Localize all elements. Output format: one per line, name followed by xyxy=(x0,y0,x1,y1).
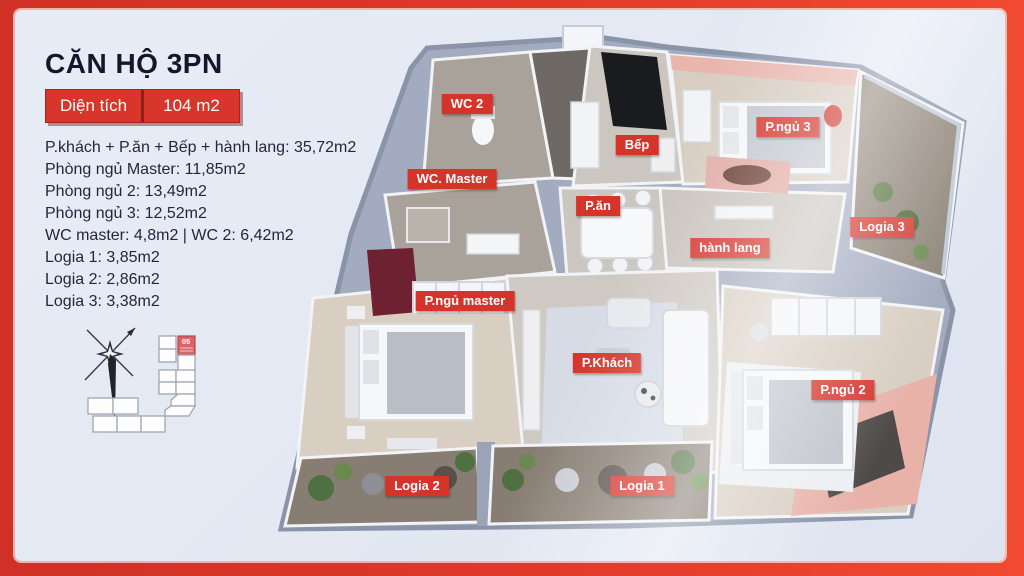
blanket xyxy=(769,380,843,464)
toilet-tank xyxy=(471,106,495,119)
chair xyxy=(587,258,603,274)
pillow xyxy=(747,376,763,400)
chair xyxy=(610,192,626,208)
pillow xyxy=(723,106,739,128)
armchair xyxy=(607,298,651,328)
bench xyxy=(387,438,437,449)
table xyxy=(433,466,457,490)
desk-chair xyxy=(750,323,768,341)
stool xyxy=(644,463,666,485)
plant xyxy=(455,452,475,472)
area-line: Phòng ngủ 3: 12,52m2 xyxy=(45,203,375,225)
headboard2 xyxy=(731,372,743,464)
plant xyxy=(873,182,893,202)
area-line: Phòng ngủ Master: 11,85m2 xyxy=(45,159,375,181)
kitchen-counter xyxy=(571,102,599,168)
chair xyxy=(635,190,651,206)
stool xyxy=(362,473,384,495)
fridge xyxy=(651,138,675,172)
plant xyxy=(502,469,524,491)
pillow xyxy=(363,330,379,354)
locator-graphic: 05 xyxy=(67,310,267,460)
vanity-sink xyxy=(467,234,519,254)
pillow xyxy=(723,132,739,154)
pillow xyxy=(747,406,763,430)
wall-art-red xyxy=(824,105,842,127)
chair xyxy=(612,257,628,273)
area-line: P.khách + P.ăn + Bếp + hành lang: 35,72m… xyxy=(45,137,375,159)
console-table xyxy=(715,206,773,219)
ottoman xyxy=(595,348,631,374)
info-panel: CĂN HỘ 3PN Diện tích 104 m2 P.khách + P.… xyxy=(45,48,375,313)
hallway-art xyxy=(723,165,771,185)
area-list: P.khách + P.ăn + Bếp + hành lang: 35,72m… xyxy=(45,137,375,313)
sofa xyxy=(663,310,709,426)
content-panel: WC 2WC. MasterBếpP.ănP.ngủ 3Logia 3hành … xyxy=(15,10,1005,561)
area-line: Logia 2: 2,86m2 xyxy=(45,269,375,291)
decor xyxy=(651,396,656,401)
plant xyxy=(690,473,708,491)
headboard xyxy=(345,326,359,418)
plant xyxy=(895,210,919,234)
shower xyxy=(407,208,449,242)
blanket xyxy=(387,332,465,414)
tv-console xyxy=(523,310,540,430)
site-plan-unit: 05 xyxy=(182,337,190,346)
decor xyxy=(641,388,647,394)
plant xyxy=(913,244,929,260)
dining-table xyxy=(581,208,653,258)
area-badge-label: Diện tích xyxy=(46,90,141,122)
stool xyxy=(555,468,579,492)
area-line: Phòng ngủ 2: 13,49m2 xyxy=(45,181,375,203)
room-hallway xyxy=(660,188,845,272)
plant xyxy=(334,463,352,481)
site-plan: 05 xyxy=(88,336,195,432)
area-line: WC master: 4,8m2 | WC 2: 6,42m2 xyxy=(45,225,375,247)
area-line: Logia 1: 3,85m2 xyxy=(45,247,375,269)
vanity-table xyxy=(683,90,711,142)
area-badge: Diện tích 104 m2 xyxy=(45,89,240,123)
plant xyxy=(519,454,535,470)
page-title: CĂN HỘ 3PN xyxy=(45,48,375,80)
plant xyxy=(308,475,334,501)
pillow xyxy=(363,360,379,384)
toilet xyxy=(472,115,494,145)
nightstand xyxy=(347,426,365,439)
blanket xyxy=(747,106,825,168)
area-badge-value: 104 m2 xyxy=(144,90,239,122)
table xyxy=(598,465,628,495)
side-table xyxy=(635,381,661,407)
plant xyxy=(671,450,695,474)
